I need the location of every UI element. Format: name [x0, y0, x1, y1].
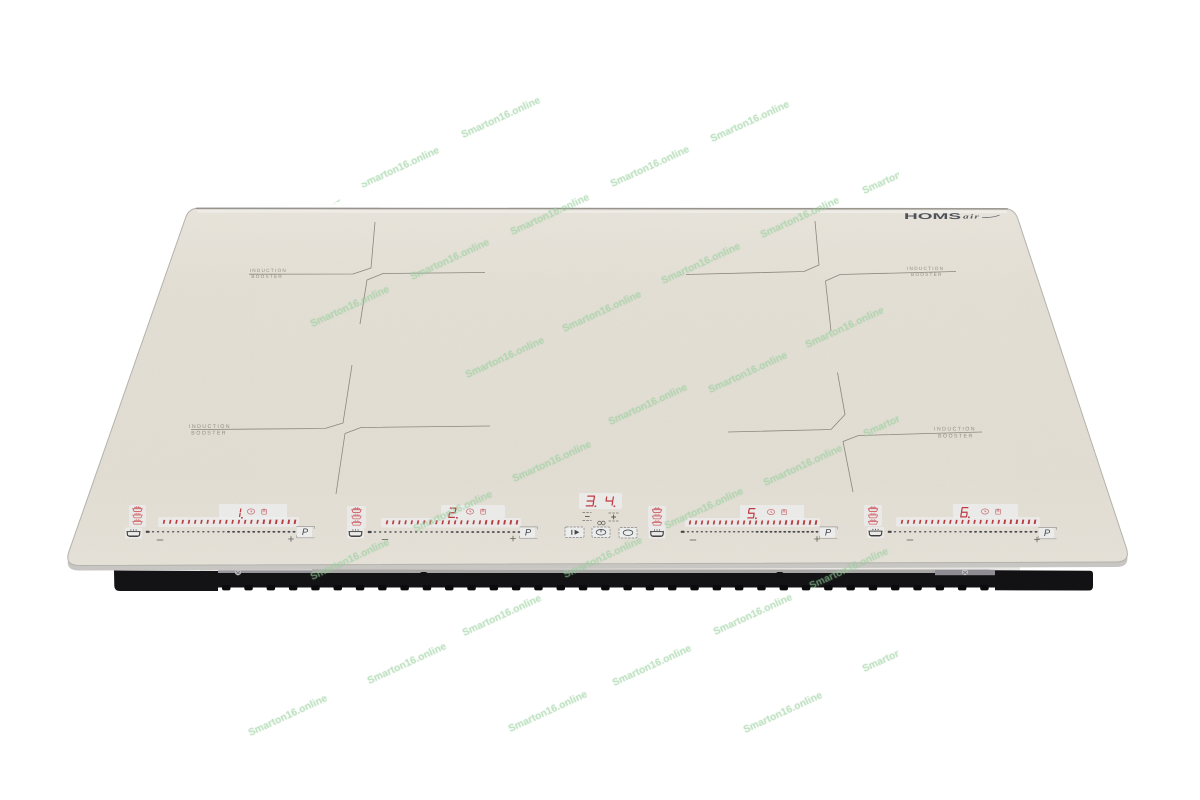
svg-text:BOOSTER: BOOSTER — [938, 434, 974, 440]
svg-text:INDUCTION: INDUCTION — [934, 427, 976, 433]
svg-text:INDUCTION: INDUCTION — [907, 266, 944, 271]
svg-text:BOOSTER: BOOSTER — [191, 431, 227, 437]
svg-text:air: air — [963, 214, 980, 221]
svg-text:P: P — [525, 527, 532, 538]
svg-text:HOMS: HOMS — [904, 212, 961, 221]
svg-text:P: P — [302, 526, 309, 537]
svg-text:P: P — [825, 527, 832, 538]
svg-text:BOOSTER: BOOSTER — [911, 272, 943, 277]
svg-text:BOOSTER: BOOSTER — [251, 274, 283, 279]
svg-text:P: P — [1044, 527, 1051, 538]
svg-text:INDUCTION: INDUCTION — [189, 424, 231, 430]
svg-text:INDUCTION: INDUCTION — [250, 268, 287, 273]
